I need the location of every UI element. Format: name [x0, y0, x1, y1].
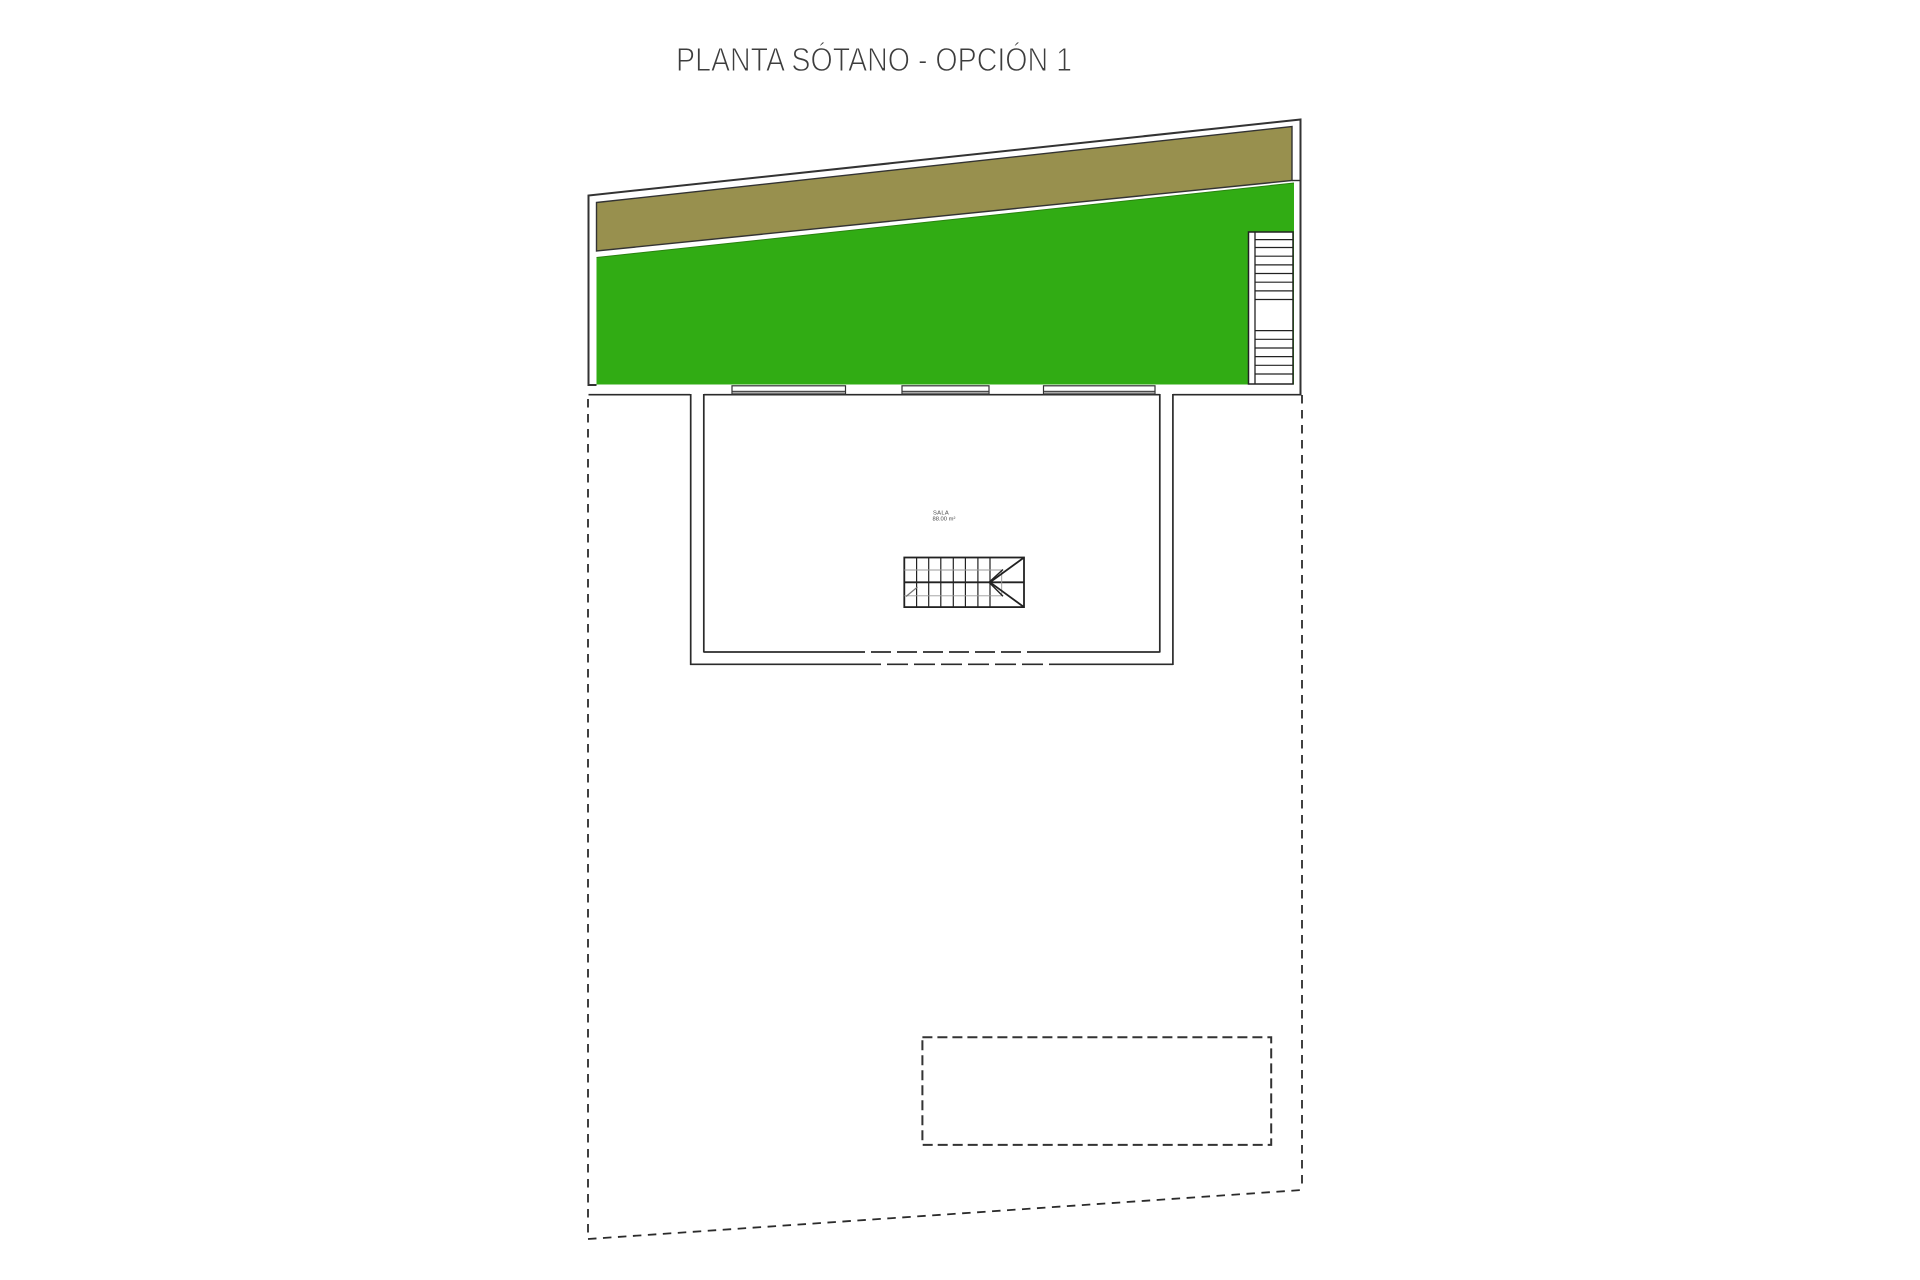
- svg-text:PLANTA SÓTANO - OPCIÓN 1: PLANTA SÓTANO - OPCIÓN 1: [676, 41, 1072, 78]
- svg-text:88.00 m²: 88.00 m²: [933, 517, 956, 523]
